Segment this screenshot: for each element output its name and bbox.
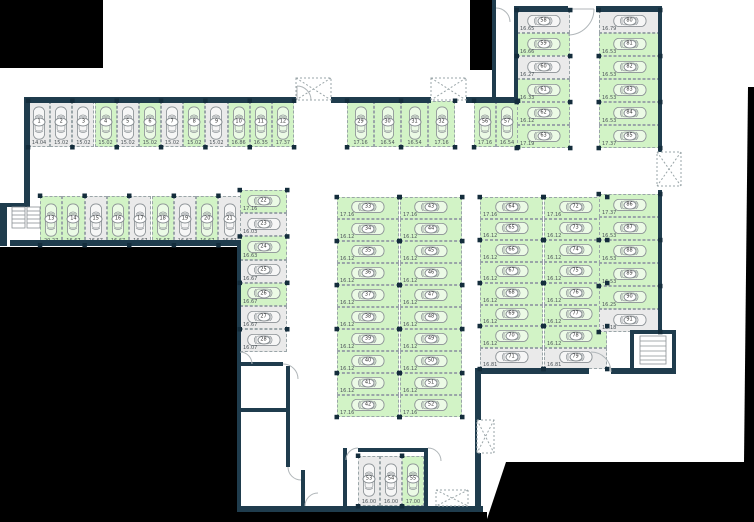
parking-space-41[interactable]: 4116.12 [337, 373, 399, 395]
space-number: 66 [505, 245, 518, 254]
space-size-label: 16.81 [547, 362, 561, 368]
parking-space-54[interactable]: 5416.00 [380, 456, 402, 506]
space-size-label: 16.67 [108, 238, 128, 244]
parking-space-63[interactable]: 6317.19 [517, 125, 570, 148]
space-size-label: 17.16 [243, 206, 257, 212]
space-size-label: 16.12 [340, 344, 354, 350]
space-size-label: 16.67 [219, 238, 239, 244]
space-number: 59 [537, 39, 550, 48]
space-size-label: 16.12 [340, 256, 354, 262]
parking-space-19[interactable]: 1916.67 [174, 196, 196, 245]
space-number: 17 [134, 214, 147, 223]
space-number: 1 [33, 118, 46, 127]
space-size-label: 14.04 [29, 140, 49, 146]
space-number: 53 [363, 475, 376, 484]
space-size-label: 16.00 [381, 499, 401, 505]
parking-space-1[interactable]: 114.04 [28, 101, 50, 147]
space-number: 14 [67, 214, 80, 223]
space-size-label: 16.67 [153, 238, 173, 244]
space-number: 3 [77, 118, 90, 127]
parking-space-74[interactable]: 7416.12 [544, 240, 607, 262]
space-number: 51 [425, 379, 438, 388]
space-number: 76 [569, 288, 582, 297]
parking-space-4[interactable]: 415.02 [95, 101, 117, 147]
space-number: 79 [569, 353, 582, 362]
space-number: 20 [201, 214, 214, 223]
space-size-label: 16.12 [403, 256, 417, 262]
space-number: 65 [505, 224, 518, 233]
space-size-label: 16.67 [243, 322, 257, 328]
space-number: 52 [425, 401, 438, 410]
parking-space-48[interactable]: 4816.12 [400, 307, 462, 329]
space-number: 29 [354, 118, 367, 127]
space-number: 85 [623, 131, 636, 140]
space-size-label: 16.12 [403, 366, 417, 372]
space-size-label: 16.63 [243, 253, 257, 259]
space-size-label: 16.67 [243, 299, 257, 305]
space-number: 13 [45, 214, 58, 223]
parking-space-90[interactable]: 9016.25 [599, 286, 660, 309]
space-number: 48 [425, 313, 438, 322]
parking-space-22[interactable]: 2217.16 [240, 190, 287, 213]
space-size-label: 16.12 [340, 322, 354, 328]
space-size-label: 15.02 [162, 140, 182, 146]
parking-space-29[interactable]: 2917.16 [347, 101, 374, 147]
space-size-label: 16.67 [175, 238, 195, 244]
space-number: 56 [479, 118, 492, 127]
parking-space-34[interactable]: 3416.12 [337, 219, 399, 241]
space-number: 64 [505, 202, 518, 211]
space-number: 32 [435, 118, 448, 127]
space-number: 73 [569, 224, 582, 233]
parking-space-46[interactable]: 4616.12 [400, 263, 462, 285]
space-number: 21 [223, 214, 236, 223]
parking-space-28[interactable]: 2816.07 [240, 329, 287, 352]
space-size-label: 16.00 [359, 499, 379, 505]
space-number: 9 [210, 118, 223, 127]
space-number: 80 [623, 16, 636, 25]
space-size-label: 17.16 [403, 410, 417, 416]
space-number: 2 [55, 118, 68, 127]
space-number: 71 [505, 353, 518, 362]
parking-space-14[interactable]: 1416.67 [62, 196, 84, 245]
space-size-label: 16.53 [602, 118, 616, 124]
space-size-label: 16.53 [602, 233, 616, 239]
space-size-label: 16.65 [520, 26, 534, 32]
parking-space-10[interactable]: 1016.86 [228, 101, 250, 147]
space-size-label: 16.12 [340, 300, 354, 306]
parking-space-40[interactable]: 4016.12 [337, 351, 399, 373]
parking-space-36[interactable]: 3616.12 [337, 263, 399, 285]
parking-space-66[interactable]: 6616.12 [480, 240, 543, 262]
space-number: 91 [623, 315, 636, 324]
space-size-label: 16.33 [520, 95, 534, 101]
parking-space-5[interactable]: 515.02 [117, 101, 139, 147]
space-size-label: 15.02 [140, 140, 160, 146]
parking-space-68[interactable]: 6816.12 [480, 283, 543, 305]
space-number: 54 [385, 475, 398, 484]
space-number: 90 [623, 292, 636, 301]
space-number: 5 [121, 118, 134, 127]
space-size-label: 17.16 [429, 140, 454, 146]
parking-space-79[interactable]: 7916.81 [544, 348, 607, 370]
space-size-label: 16.53 [602, 279, 616, 285]
parking-space-35[interactable]: 3516.12 [337, 241, 399, 263]
space-number: 18 [156, 214, 169, 223]
space-number: 84 [623, 108, 636, 117]
space-size-label: 16.12 [520, 118, 534, 124]
space-size-label: 15.02 [118, 140, 138, 146]
space-number: 68 [505, 288, 518, 297]
parking-space-70[interactable]: 7016.12 [480, 326, 543, 348]
space-number: 43 [425, 203, 438, 212]
space-number: 6 [143, 118, 156, 127]
space-size-label: 17.16 [475, 140, 495, 146]
space-size-label: 16.12 [403, 322, 417, 328]
space-size-label: 16.12 [547, 319, 561, 325]
parking-space-2[interactable]: 215.02 [50, 101, 72, 147]
space-size-label: 16.12 [547, 341, 561, 347]
space-size-label: 17.16 [403, 212, 417, 218]
parking-space-42[interactable]: 4217.16 [337, 395, 399, 417]
parking-space-13[interactable]: 1320.27 [40, 196, 62, 245]
parking-space-76[interactable]: 7616.12 [544, 283, 607, 305]
parking-space-89[interactable]: 8916.53 [599, 263, 660, 286]
parking-space-64[interactable]: 6417.16 [480, 197, 543, 219]
space-size-label: 15.02 [51, 140, 71, 146]
space-size-label: 17.16 [340, 212, 354, 218]
space-size-label: 16.07 [243, 345, 257, 351]
space-size-label: 16.12 [483, 233, 497, 239]
parking-space-17[interactable]: 1716.67 [129, 196, 151, 245]
space-size-label: 16.12 [483, 341, 497, 347]
space-size-label: 17.16 [348, 140, 373, 146]
space-size-label: 16.12 [483, 298, 497, 304]
space-number: 45 [425, 247, 438, 256]
parking-space-69[interactable]: 6916.12 [480, 305, 543, 327]
parking-space-59[interactable]: 5916.66 [517, 33, 570, 56]
parking-space-80[interactable]: 8016.79 [599, 10, 660, 33]
parking-space-3[interactable]: 315.02 [72, 101, 94, 147]
space-size-label: 16.12 [340, 278, 354, 284]
parking-space-33[interactable]: 3317.16 [337, 197, 399, 219]
space-number: 75 [569, 267, 582, 276]
parking-space-51[interactable]: 5116.12 [400, 373, 462, 395]
parking-space-6[interactable]: 615.02 [139, 101, 161, 147]
space-number: 26 [257, 289, 270, 298]
space-size-label: 16.81 [483, 362, 497, 368]
space-size-label: 16.54 [402, 140, 427, 146]
space-size-label: 16.12 [547, 298, 561, 304]
space-number: 33 [362, 203, 375, 212]
space-size-label: 16.54 [375, 140, 400, 146]
parking-space-7[interactable]: 715.02 [161, 101, 183, 147]
space-number: 35 [362, 247, 375, 256]
parking-space-38[interactable]: 3816.12 [337, 307, 399, 329]
space-size-label: 16.27 [520, 72, 534, 78]
parking-space-16[interactable]: 1616.67 [107, 196, 129, 245]
space-number: 23 [257, 219, 270, 228]
parking-space-30[interactable]: 3016.54 [374, 101, 401, 147]
space-size-label: 16.67 [130, 238, 150, 244]
parking-space-43[interactable]: 4317.16 [400, 197, 462, 219]
space-size-label: 16.53 [602, 49, 616, 55]
space-size-label: 17.16 [340, 410, 354, 416]
space-number: 31 [408, 118, 421, 127]
space-size-label: 16.12 [403, 278, 417, 284]
space-size-label: 16.12 [547, 276, 561, 282]
parking-space-85[interactable]: 8517.37 [599, 125, 660, 148]
space-number: 60 [537, 62, 550, 71]
parking-space-32[interactable]: 3217.16 [428, 101, 455, 147]
space-size-label: 16.35 [251, 140, 271, 146]
parking-space-9[interactable]: 915.02 [205, 101, 227, 147]
spaces-layer: 114.04215.02315.02415.02515.02615.02715.… [0, 0, 754, 522]
space-size-label: 16.12 [483, 255, 497, 261]
space-number: 41 [362, 379, 375, 388]
space-size-label: 15.02 [96, 140, 116, 146]
parking-space-60[interactable]: 6016.27 [517, 56, 570, 79]
space-size-label: 16.12 [403, 234, 417, 240]
space-number: 67 [505, 267, 518, 276]
space-number: 36 [362, 269, 375, 278]
parking-space-83[interactable]: 8316.53 [599, 79, 660, 102]
parking-space-71[interactable]: 7116.81 [480, 348, 543, 370]
space-number: 89 [623, 269, 636, 278]
space-size-label: 16.54 [497, 140, 517, 146]
space-size-label: 16.12 [340, 366, 354, 372]
space-size-label: 16.12 [483, 319, 497, 325]
parking-space-75[interactable]: 7516.12 [544, 262, 607, 284]
space-size-label: 16.67 [86, 238, 106, 244]
space-size-label: 15.02 [184, 140, 204, 146]
space-size-label: 16.53 [602, 72, 616, 78]
space-number: 11 [254, 118, 267, 127]
parking-space-78[interactable]: 7816.12 [544, 326, 607, 348]
space-number: 69 [505, 310, 518, 319]
parking-space-91[interactable]: 9116.18 [599, 309, 660, 332]
space-size-label: 15.02 [73, 140, 93, 146]
space-number: 15 [89, 214, 102, 223]
space-size-label: 17.00 [403, 499, 423, 505]
space-number: 47 [425, 291, 438, 300]
parking-space-84[interactable]: 8416.53 [599, 102, 660, 125]
parking-space-57[interactable]: 5716.54 [496, 101, 518, 147]
space-size-label: 16.18 [602, 325, 616, 331]
parking-space-58[interactable]: 5816.65 [517, 10, 570, 33]
space-number: 34 [362, 225, 375, 234]
parking-space-23[interactable]: 2316.03 [240, 213, 287, 236]
parking-space-65[interactable]: 6516.12 [480, 219, 543, 241]
space-number: 83 [623, 85, 636, 94]
space-number: 12 [276, 118, 289, 127]
space-number: 4 [99, 118, 112, 127]
parking-space-18[interactable]: 1816.67 [152, 196, 174, 245]
space-number: 78 [569, 331, 582, 340]
parking-space-77[interactable]: 7716.12 [544, 305, 607, 327]
parking-space-50[interactable]: 5016.12 [400, 351, 462, 373]
floor-plan: 114.04215.02315.02415.02515.02615.02715.… [0, 0, 754, 522]
space-number: 88 [623, 246, 636, 255]
space-size-label: 16.25 [602, 302, 616, 308]
parking-space-86[interactable]: 8617.37 [599, 194, 660, 217]
parking-space-61[interactable]: 6116.33 [517, 79, 570, 102]
parking-space-44[interactable]: 4416.12 [400, 219, 462, 241]
space-size-label: 17.16 [483, 212, 497, 218]
space-number: 58 [537, 16, 550, 25]
space-number: 7 [166, 118, 179, 127]
space-size-label: 16.03 [243, 229, 257, 235]
space-number: 37 [362, 291, 375, 300]
space-number: 74 [569, 245, 582, 254]
space-number: 81 [623, 39, 636, 48]
parking-space-73[interactable]: 7316.12 [544, 219, 607, 241]
parking-space-20[interactable]: 2016.67 [196, 196, 218, 245]
space-size-label: 15.02 [206, 140, 226, 146]
parking-space-27[interactable]: 2716.67 [240, 306, 287, 329]
parking-space-55[interactable]: 5517.00 [402, 456, 424, 506]
space-number: 39 [362, 335, 375, 344]
space-number: 50 [425, 357, 438, 366]
space-size-label: 17.37 [602, 210, 616, 216]
parking-space-37[interactable]: 3716.12 [337, 285, 399, 307]
parking-space-88[interactable]: 8816.53 [599, 240, 660, 263]
parking-space-39[interactable]: 3916.12 [337, 329, 399, 351]
space-size-label: 16.12 [403, 344, 417, 350]
parking-space-45[interactable]: 4516.12 [400, 241, 462, 263]
parking-space-25[interactable]: 2516.67 [240, 260, 287, 283]
parking-space-11[interactable]: 1116.35 [250, 101, 272, 147]
parking-space-53[interactable]: 5316.00 [358, 456, 380, 506]
space-number: 61 [537, 85, 550, 94]
parking-space-62[interactable]: 6216.12 [517, 102, 570, 125]
space-size-label: 16.12 [340, 388, 354, 394]
space-number: 40 [362, 357, 375, 366]
space-size-label: 16.12 [340, 234, 354, 240]
parking-space-15[interactable]: 1516.67 [85, 196, 107, 245]
parking-space-47[interactable]: 4716.12 [400, 285, 462, 307]
space-number: 49 [425, 335, 438, 344]
space-number: 44 [425, 225, 438, 234]
parking-space-56[interactable]: 5617.16 [474, 101, 496, 147]
parking-space-81[interactable]: 8116.53 [599, 33, 660, 56]
space-size-label: 17.37 [602, 141, 616, 147]
space-number: 46 [425, 269, 438, 278]
space-size-label: 16.12 [403, 300, 417, 306]
space-number: 22 [257, 196, 270, 205]
space-number: 57 [501, 118, 514, 127]
space-number: 28 [257, 335, 270, 344]
parking-space-12[interactable]: 1217.37 [272, 101, 294, 147]
parking-space-26[interactable]: 2616.67 [240, 283, 287, 306]
space-size-label: 16.79 [602, 26, 616, 32]
space-size-label: 16.12 [403, 388, 417, 394]
parking-space-82[interactable]: 8216.53 [599, 56, 660, 79]
space-number: 87 [623, 223, 636, 232]
space-number: 63 [537, 131, 550, 140]
space-size-label: 16.53 [602, 256, 616, 262]
space-number: 8 [188, 118, 201, 127]
space-size-label: 17.16 [547, 212, 561, 218]
space-number: 25 [257, 266, 270, 275]
space-number: 19 [178, 214, 191, 223]
space-number: 30 [381, 118, 394, 127]
space-number: 27 [257, 312, 270, 321]
space-number: 55 [407, 475, 420, 484]
space-number: 70 [505, 331, 518, 340]
space-size-label: 20.27 [41, 238, 61, 244]
parking-space-49[interactable]: 4916.12 [400, 329, 462, 351]
space-number: 42 [362, 401, 375, 410]
space-size-label: 16.67 [197, 238, 217, 244]
parking-space-24[interactable]: 2416.63 [240, 236, 287, 259]
space-number: 62 [537, 108, 550, 117]
space-size-label: 17.37 [273, 140, 293, 146]
parking-space-21[interactable]: 2116.67 [218, 196, 240, 245]
space-number: 24 [257, 243, 270, 252]
space-number: 77 [569, 310, 582, 319]
space-size-label: 16.86 [229, 140, 249, 146]
space-number: 72 [569, 202, 582, 211]
space-size-label: 17.19 [520, 141, 534, 147]
parking-space-87[interactable]: 8716.53 [599, 217, 660, 240]
parking-space-67[interactable]: 6716.12 [480, 262, 543, 284]
space-number: 86 [623, 200, 636, 209]
parking-space-8[interactable]: 815.02 [183, 101, 205, 147]
space-size-label: 16.12 [547, 255, 561, 261]
space-number: 38 [362, 313, 375, 322]
space-size-label: 16.53 [602, 95, 616, 101]
parking-space-31[interactable]: 3116.54 [401, 101, 428, 147]
space-size-label: 16.67 [63, 238, 83, 244]
space-number: 10 [232, 118, 245, 127]
space-size-label: 16.67 [243, 276, 257, 282]
parking-space-52[interactable]: 5217.16 [400, 395, 462, 417]
space-size-label: 16.12 [547, 233, 561, 239]
space-number: 16 [112, 214, 125, 223]
space-number: 82 [623, 62, 636, 71]
space-size-label: 16.66 [520, 49, 534, 55]
parking-space-72[interactable]: 7217.16 [544, 197, 607, 219]
space-size-label: 16.12 [483, 276, 497, 282]
